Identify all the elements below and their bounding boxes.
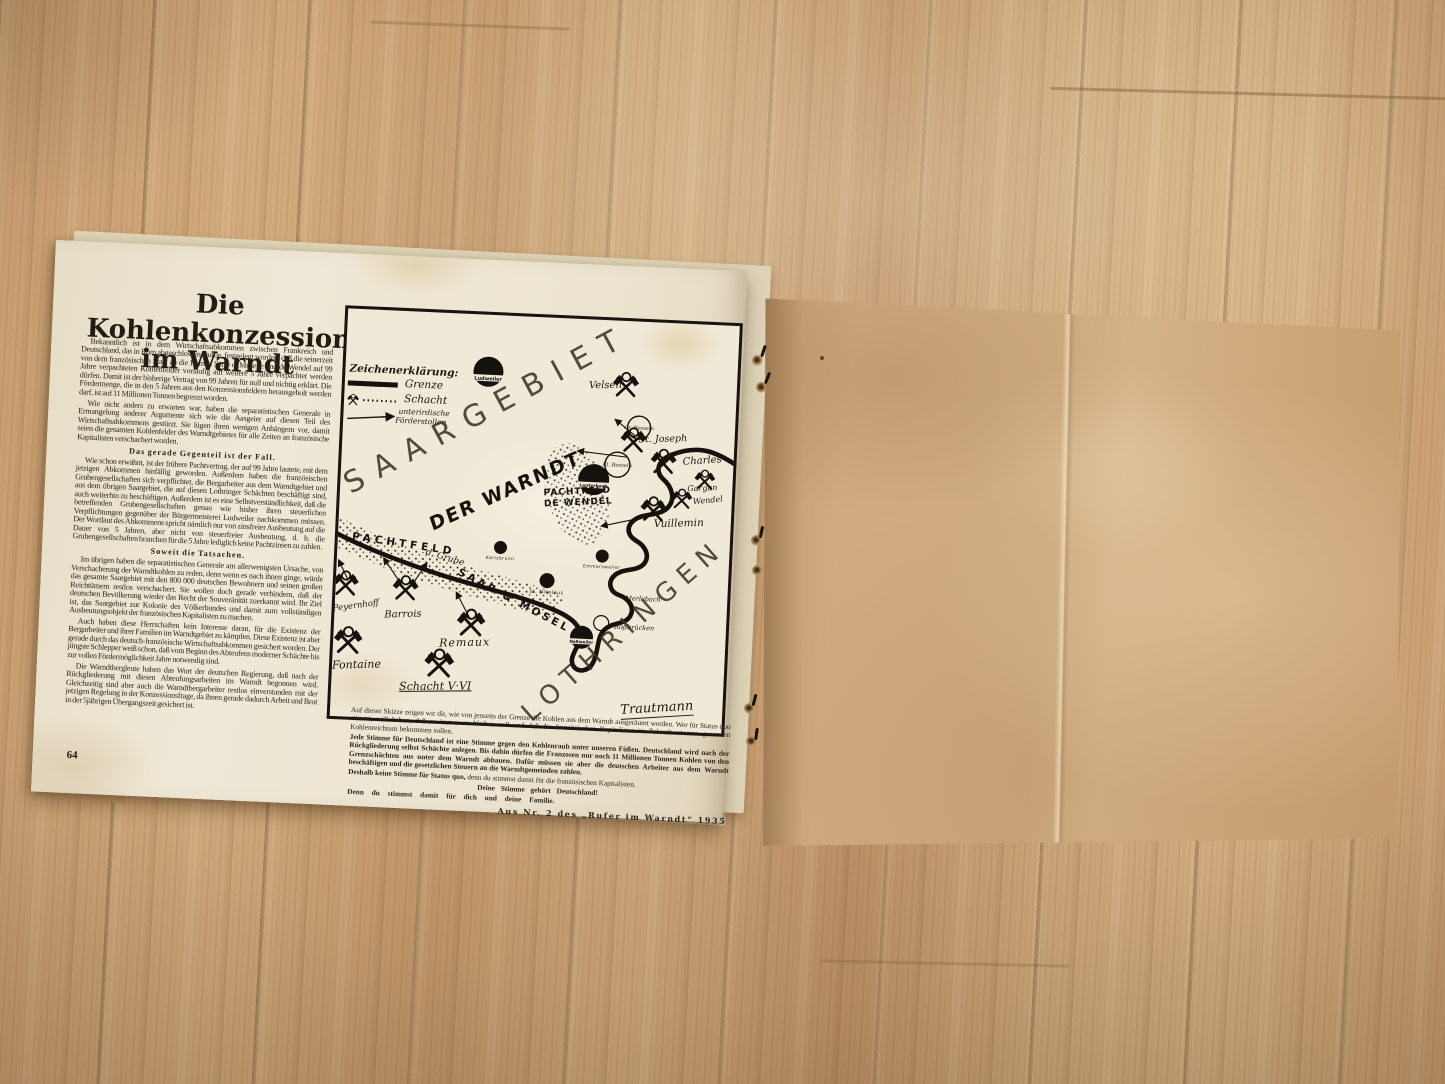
legend-schacht-dots	[363, 400, 397, 402]
mine-label-velsen: Velsen	[589, 380, 622, 391]
page-number: 64	[66, 749, 78, 761]
mine-icon-remaux	[456, 609, 486, 635]
floor-plank-joint	[1050, 87, 1445, 100]
cover-crease	[1052, 289, 1076, 875]
mine-label-st-joseph: St. Joseph	[638, 433, 687, 445]
cover-speck	[820, 356, 824, 360]
paragraph: Die Warndtbergleute haben das Wort der d…	[65, 662, 319, 716]
mine-icon-fontaine	[333, 626, 363, 652]
stitch-thread	[759, 526, 764, 538]
article-body: Bekanntlich ist in dem Wirtschaftsabkomm…	[65, 337, 334, 718]
place-label-gr-rosseln: Gr. Rosseln	[624, 425, 654, 432]
town-dot-emmersweiler: Emmersweiler	[583, 549, 621, 571]
stitch-thread	[752, 694, 758, 706]
map-figure: Ludweiler Lauterbach Naßweiler Karlsbrun…	[327, 305, 743, 737]
field-label-de-wendel: PACHTFELD DE WENDEL	[543, 486, 613, 511]
place-label-kl-rosseln: Kl. Rosseln	[602, 462, 633, 469]
legend-schacht-icon	[347, 394, 359, 405]
paragraph: Wie schon erwähnt, ist der frühere Pacht…	[72, 456, 328, 552]
mine-label-charles: Charles	[682, 454, 722, 467]
paragraph: Im übrigen haben die separatistischen Ge…	[69, 555, 323, 626]
mine-label-vuillemin: Vuillemin	[654, 517, 704, 530]
mine-label-fontaine: Fontaine	[332, 657, 381, 671]
back-cover	[763, 293, 1400, 846]
town-dot-karlsbrunn: Karlsbrunn	[486, 540, 516, 562]
paragraph: Wie nicht anders zu erwarten war, haben …	[77, 399, 331, 453]
floor-plank-joint	[370, 21, 570, 30]
mine-icon-schacht-v-vi	[424, 649, 455, 676]
paragraph: Bekanntlich ist in dem Wirtschaftsabkomm…	[79, 337, 333, 408]
floor-plank-joint	[820, 959, 1070, 967]
mine-label-barrois: Barrois	[384, 609, 421, 621]
legend-grenze-label: Grenze	[405, 378, 444, 392]
stitch-hole	[752, 565, 763, 576]
photo-of-booklet-on-wood-floor: { "page": { "number": "64", "title_line1…	[0, 0, 1445, 1084]
legend-stollen-arrow	[347, 414, 393, 420]
below-map-text: Auf dieser Skizze zeigen wir dir, wie vo…	[346, 706, 730, 827]
town-dot-st-nikolaus: St. Nikolaus	[529, 572, 564, 596]
legend-schacht-label: Schacht	[404, 393, 447, 407]
mine-label-remaux: Remaux	[439, 635, 490, 649]
page-left: Die Kohlenkonzession im Warndt Bekanntli…	[31, 240, 747, 823]
town-label-emmersweiler: Emmersweiler	[583, 563, 621, 571]
town-label-ludweiler: Ludweiler	[474, 376, 502, 383]
mine-label-schacht-v-vi: Schacht V·VI	[399, 679, 471, 693]
mine-label-gargan: Gargan	[687, 483, 717, 493]
legend-grenze-line	[348, 380, 398, 387]
stitch-thread	[754, 728, 759, 740]
mine-icon-barrois	[392, 575, 419, 599]
town-label-karlsbrunn: Karlsbrunn	[486, 555, 515, 562]
